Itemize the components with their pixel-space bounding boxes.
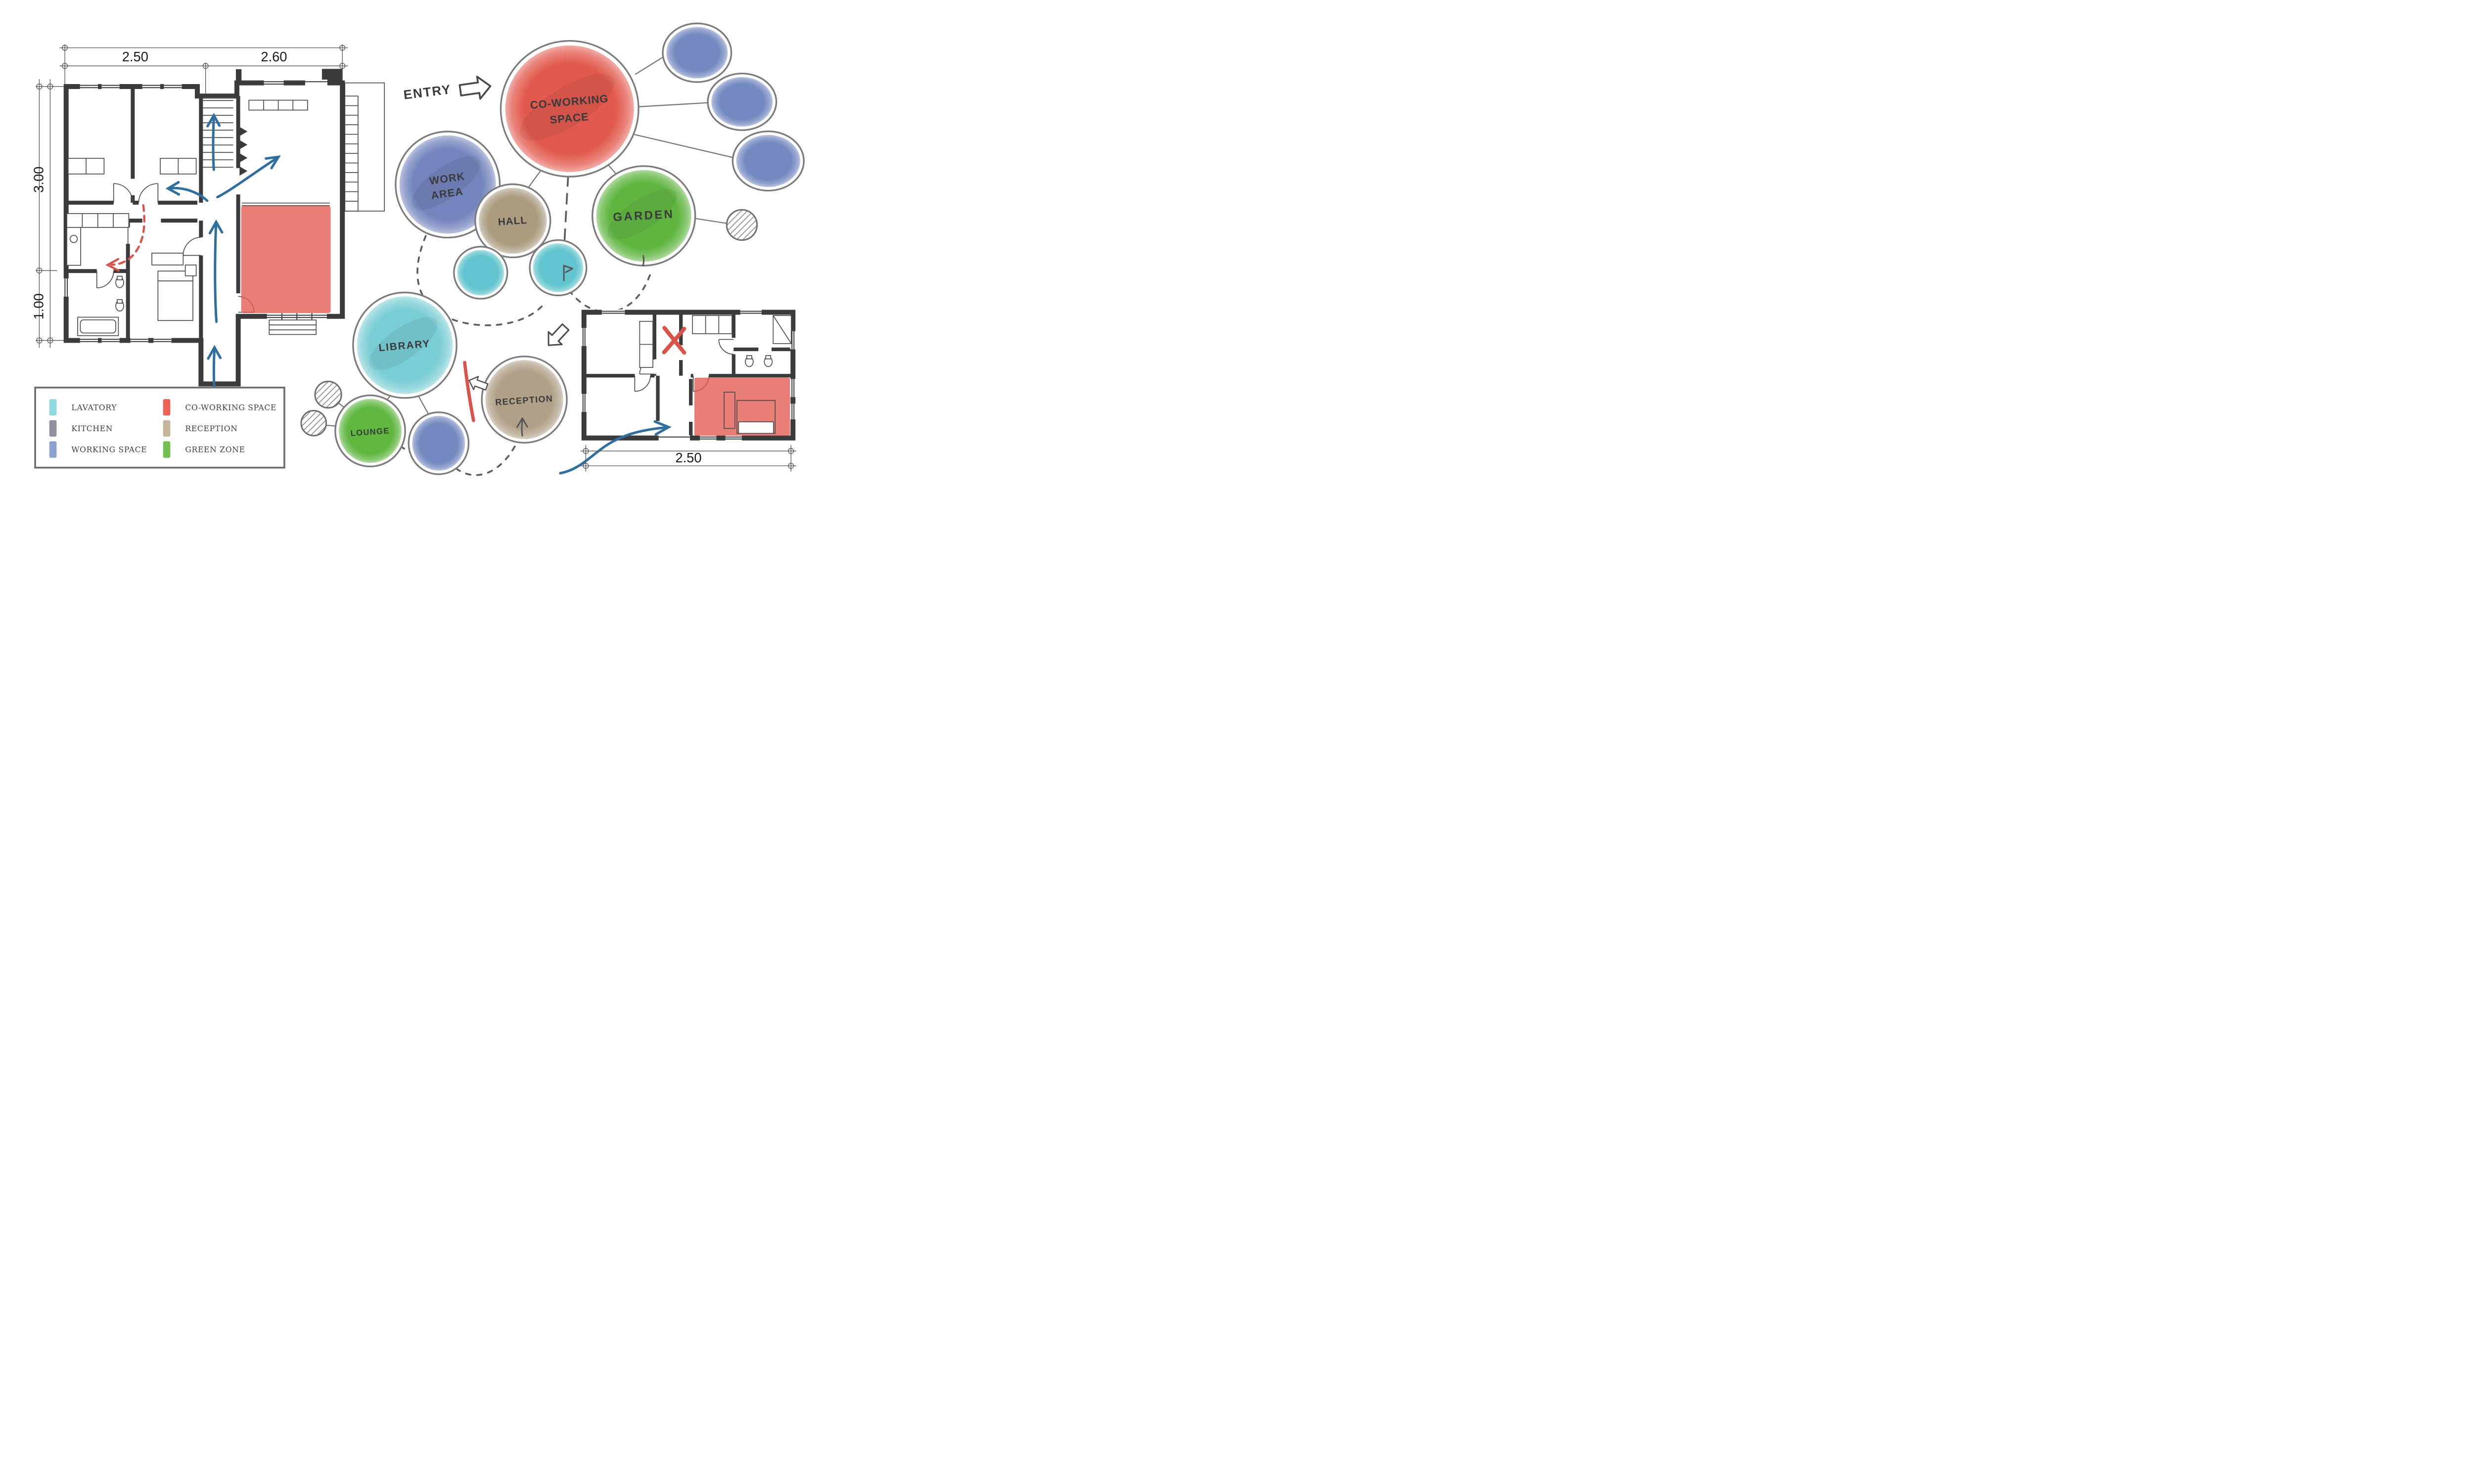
legend-swatch-green-zone xyxy=(163,441,171,457)
staircase xyxy=(202,98,247,176)
svg-text:KITCHEN: KITCHEN xyxy=(71,424,113,433)
legend-swatch-kitchen xyxy=(49,420,57,437)
bubble-lavatory-1 xyxy=(454,247,507,299)
dim-3-00: 3.00 xyxy=(31,167,46,193)
co-working-zone-highlight-left xyxy=(241,206,331,314)
svg-text:WORKING SPACE: WORKING SPACE xyxy=(71,445,147,454)
legend-swatch-working-space xyxy=(49,441,57,457)
garden-tick xyxy=(643,256,644,266)
svg-text:LAVATORY: LAVATORY xyxy=(71,403,117,412)
entry-annotation: ENTRY xyxy=(403,75,492,102)
legend-swatch-lavatory xyxy=(49,399,57,415)
hatched-circle-garden xyxy=(727,210,757,240)
dim-2-50-left: 2.50 xyxy=(122,49,148,64)
bubble-satellite-2 xyxy=(708,74,777,131)
dim-2-60: 2.60 xyxy=(261,49,287,64)
bubble-reception: RECEPTION xyxy=(482,357,567,443)
svg-text:RECEPTION: RECEPTION xyxy=(185,424,237,433)
bubble-lavatory-2 xyxy=(530,240,587,296)
chimney-block xyxy=(236,69,241,84)
floor-plan-right: 2.50 xyxy=(560,310,796,473)
next-step-arrow-icon xyxy=(542,321,572,352)
legend-swatch-co-working-space xyxy=(163,399,171,415)
bubble-satellite-1 xyxy=(663,23,732,82)
legend-swatch-reception xyxy=(163,420,171,437)
circulation-arrow-right-plan xyxy=(560,421,669,473)
hatched-circle-lounge-1 xyxy=(315,381,341,407)
dim-2-50-right: 2.50 xyxy=(675,450,701,465)
dim-1-00: 1.00 xyxy=(31,293,46,319)
floor-plan-left: 2.50 2.60 3.00 1.00 xyxy=(31,45,384,390)
bubble-satellite-3 xyxy=(733,132,804,191)
dimension-left: 3.00 1.00 xyxy=(31,79,65,348)
svg-text:HALL: HALL xyxy=(498,215,527,228)
hatched-circle-lounge-2 xyxy=(301,410,326,436)
terrace xyxy=(345,83,384,211)
entry-arrow-icon xyxy=(459,75,492,101)
furniture-right-plan xyxy=(640,315,791,367)
svg-text:CO-WORKING SPACE: CO-WORKING SPACE xyxy=(185,403,276,412)
bubble-garden: GARDEN xyxy=(593,166,695,266)
bubble-library: LIBRARY xyxy=(353,292,457,398)
legend: LAVATORY KITCHEN WORKING SPACE CO-WORKIN… xyxy=(35,388,284,468)
bubble-co-working-space: CO-WORKING SPACE xyxy=(501,41,639,177)
bubble-working-small xyxy=(409,412,468,474)
svg-text:GREEN ZONE: GREEN ZONE xyxy=(185,445,245,454)
architectural-concept-sketch: 2.50 2.60 3.00 1.00 xyxy=(0,0,824,495)
bubble-lounge: LOUNGE xyxy=(335,395,405,466)
dimension-right-plan: 2.50 xyxy=(580,445,796,472)
entry-label: ENTRY xyxy=(403,82,452,102)
